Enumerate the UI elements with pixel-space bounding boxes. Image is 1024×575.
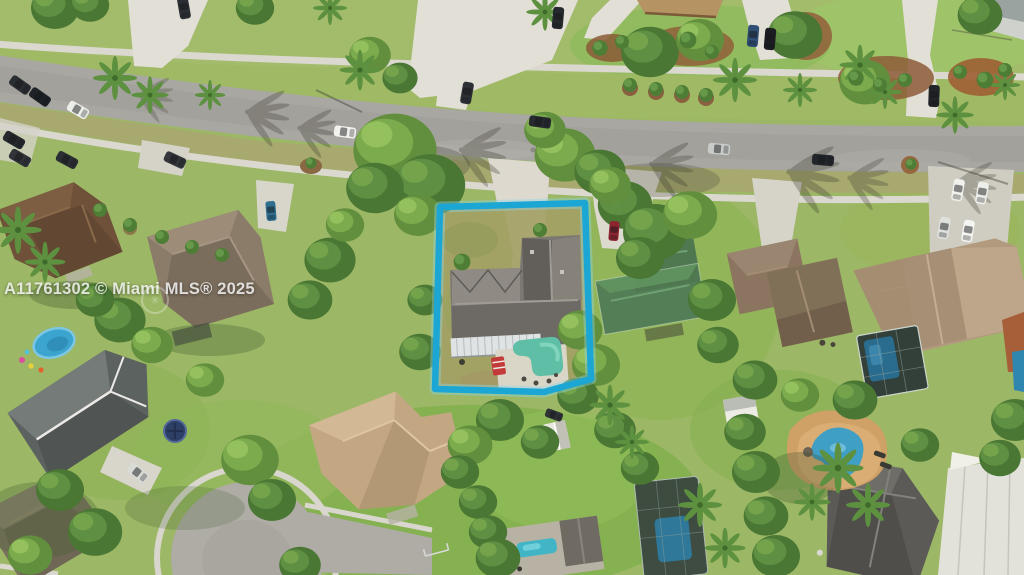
red-pool-float bbox=[491, 356, 506, 376]
aerial-photo: A11761302 © Miami MLS® 2025 ✳ bbox=[0, 0, 1024, 575]
mls-watermark-text: A11761302 © Miami MLS® 2025 bbox=[4, 280, 255, 299]
subject-property bbox=[435, 203, 591, 392]
trampoline bbox=[164, 420, 186, 442]
mls-logo-watermark-icon: ✳ bbox=[141, 286, 169, 314]
screened-enclosure-pool bbox=[634, 476, 708, 575]
